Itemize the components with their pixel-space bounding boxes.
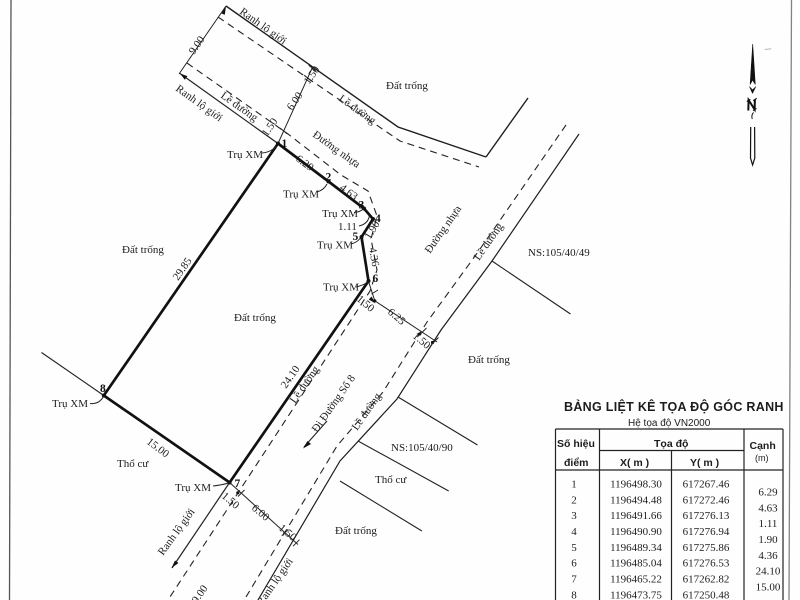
svg-text:1: 1 [282, 138, 288, 150]
svg-text:5: 5 [571, 542, 577, 554]
svg-text:1196465.22: 1196465.22 [610, 574, 662, 586]
svg-text:4.36: 4.36 [758, 550, 778, 562]
svg-text:Trụ XM: Trụ XM [317, 240, 353, 252]
svg-text:Thổ cư: Thổ cư [375, 474, 407, 486]
svg-text:1196473.75: 1196473.75 [610, 589, 662, 600]
svg-text:Tọa độ: Tọa độ [654, 438, 688, 450]
svg-text:6: 6 [571, 558, 577, 570]
svg-text:Cạnh: Cạnh [750, 440, 776, 452]
svg-text:4: 4 [571, 526, 577, 538]
svg-text:Đất trống: Đất trống [335, 525, 377, 537]
svg-text:Trụ XM: Trụ XM [52, 398, 88, 410]
svg-text:NS:105/40/49: NS:105/40/49 [528, 247, 590, 259]
svg-text:617262.82: 617262.82 [683, 574, 730, 586]
svg-text:X( m ): X( m ) [620, 457, 649, 469]
svg-text:1196494.48: 1196494.48 [610, 494, 662, 506]
svg-text:1196489.34: 1196489.34 [610, 542, 662, 554]
svg-text:617250.48: 617250.48 [683, 589, 730, 600]
svg-text:15.00: 15.00 [756, 582, 781, 594]
svg-text:3: 3 [571, 510, 577, 522]
svg-text:Số hiệu: Số hiệu [557, 438, 595, 450]
svg-text:Hệ tọa độ VN2000: Hệ tọa độ VN2000 [628, 418, 711, 429]
svg-text:1196490.90: 1196490.90 [610, 526, 662, 538]
svg-text:2: 2 [571, 494, 577, 506]
svg-text:8: 8 [100, 383, 106, 395]
svg-text:1.11: 1.11 [759, 518, 778, 530]
svg-text:617272.46: 617272.46 [683, 494, 730, 506]
svg-text:2: 2 [326, 172, 332, 184]
svg-text:Trụ XM: Trụ XM [227, 149, 263, 161]
svg-text:Trụ XM: Trụ XM [323, 282, 359, 294]
svg-text:1.90: 1.90 [758, 534, 778, 546]
svg-text:Thổ cư: Thổ cư [117, 458, 149, 470]
svg-text:BẢNG LIỆT KÊ TỌA ĐỘ GÓC RANH: BẢNG LIỆT KÊ TỌA ĐỘ GÓC RANH [564, 399, 784, 414]
svg-text:1196485.04: 1196485.04 [610, 558, 662, 570]
svg-text:Đất trống: Đất trống [122, 244, 164, 256]
svg-text:Trụ XM: Trụ XM [283, 189, 319, 201]
svg-text:617276.13: 617276.13 [683, 510, 730, 522]
svg-text:3: 3 [359, 200, 365, 212]
svg-text:6.29: 6.29 [758, 487, 778, 499]
svg-text:6: 6 [373, 273, 379, 285]
svg-text:Trụ XM: Trụ XM [322, 208, 358, 220]
svg-text:Đất trống: Đất trống [386, 80, 428, 92]
svg-text:điểm: điểm [564, 457, 589, 469]
svg-text:Đất trống: Đất trống [234, 312, 276, 324]
svg-text:1: 1 [571, 479, 577, 491]
svg-text:Y( m ): Y( m ) [690, 457, 719, 469]
svg-text:7: 7 [571, 574, 577, 586]
svg-text:617276.94: 617276.94 [683, 526, 730, 538]
svg-text:1196498.30: 1196498.30 [610, 479, 662, 491]
svg-text:1196491.66: 1196491.66 [610, 510, 662, 522]
svg-text:1.11: 1.11 [338, 221, 357, 233]
svg-text:617267.46: 617267.46 [683, 479, 730, 491]
svg-text:8: 8 [571, 589, 577, 600]
svg-text:4.63: 4.63 [758, 502, 778, 514]
svg-text:NS:105/40/90: NS:105/40/90 [391, 442, 453, 454]
svg-text:Trụ XM: Trụ XM [175, 482, 211, 494]
svg-text:Đất trống: Đất trống [468, 354, 510, 366]
svg-text:617276.53: 617276.53 [683, 558, 730, 570]
svg-text:(m): (m) [755, 453, 769, 463]
svg-text:617275.86: 617275.86 [683, 542, 730, 554]
svg-text:24.10: 24.10 [756, 566, 781, 578]
